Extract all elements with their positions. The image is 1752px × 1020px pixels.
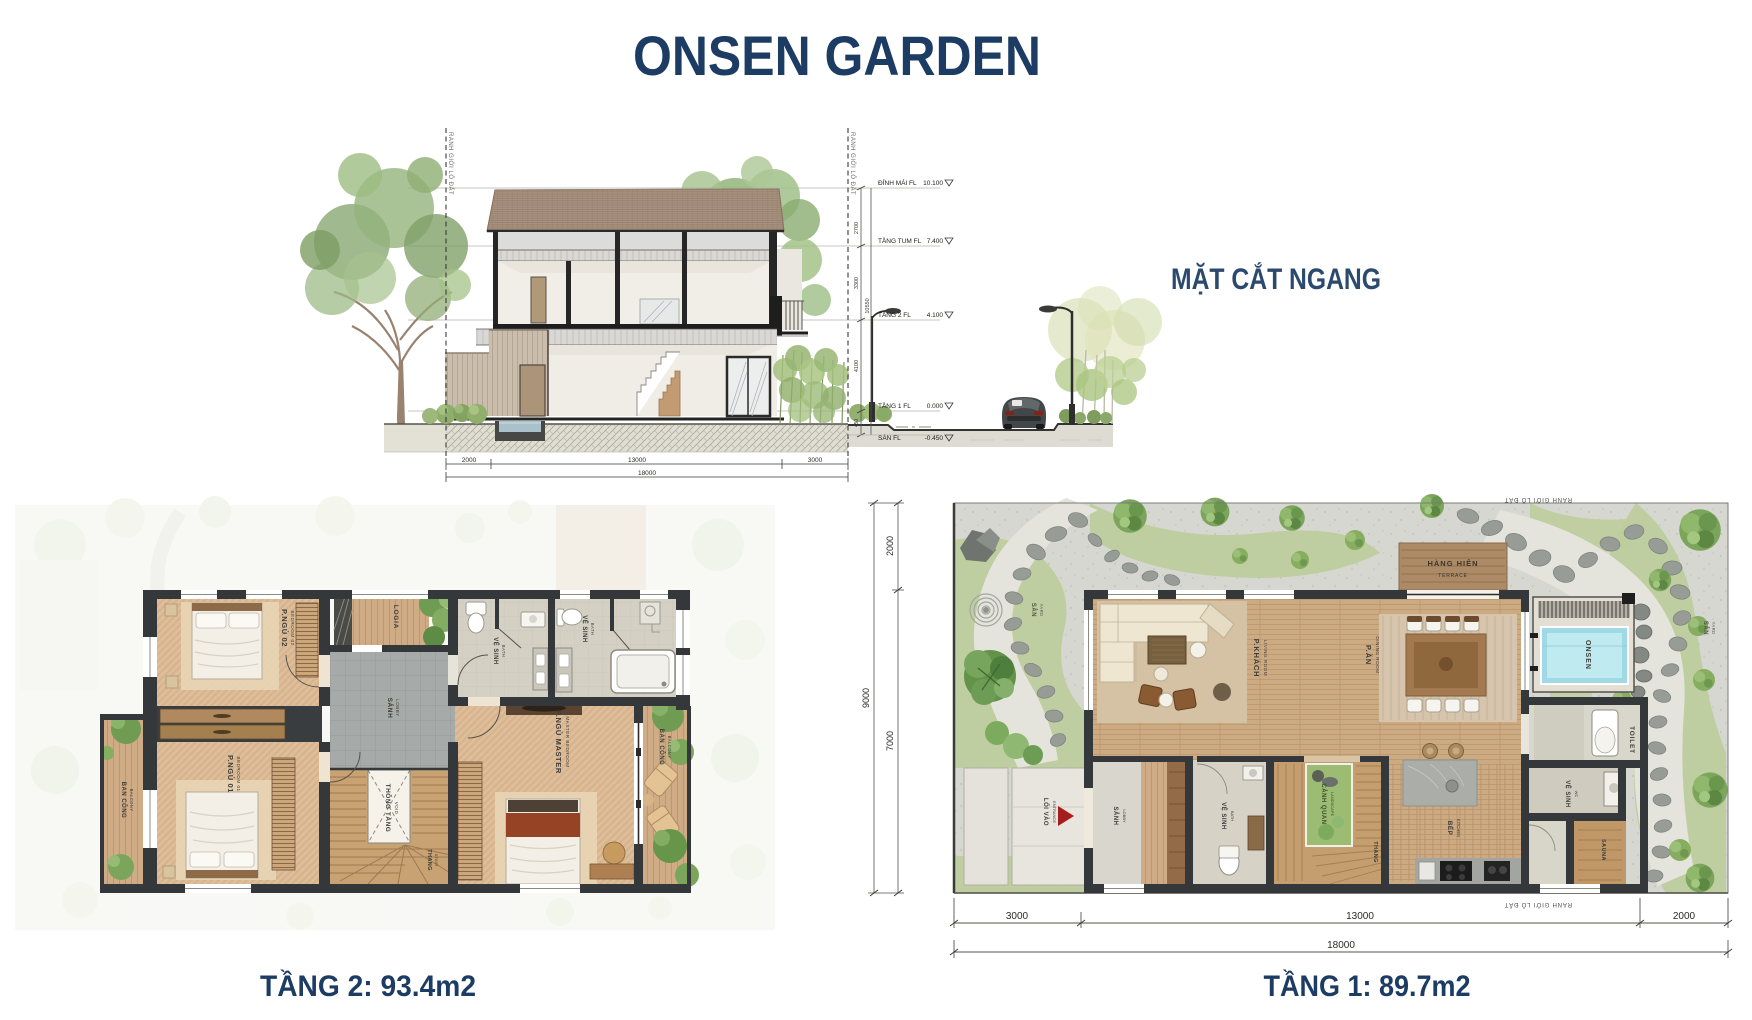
- svg-text:RANH GIỚI LÔ ĐẤT: RANH GIỚI LÔ ĐẤT: [1504, 901, 1572, 908]
- svg-text:VỆ SINH: VỆ SINH: [1564, 780, 1572, 808]
- svg-text:ONSEN: ONSEN: [1584, 640, 1591, 670]
- svg-text:450: 450: [854, 419, 860, 428]
- svg-text:HÀNG HIÊN: HÀNG HIÊN: [1427, 559, 1478, 568]
- svg-text:7000: 7000: [885, 731, 895, 751]
- svg-text:STAIR: STAIR: [434, 854, 439, 867]
- svg-text:13000: 13000: [1346, 911, 1374, 922]
- svg-text:MASTER BEDROOM: MASTER BEDROOM: [565, 716, 570, 767]
- svg-text:MẶT CẮT NGANG: MẶT CẮT NGANG: [1171, 262, 1381, 296]
- svg-text:SAUNA: SAUNA: [1600, 839, 1606, 861]
- svg-text:BATH: BATH: [1230, 811, 1235, 821]
- svg-text:2000: 2000: [462, 457, 477, 464]
- svg-text:VOID: VOID: [394, 802, 399, 815]
- svg-text:LANDSCAPE: LANDSCAPE: [1330, 792, 1335, 817]
- svg-text:LỐI VÀO: LỐI VÀO: [1042, 798, 1049, 826]
- svg-text:2000: 2000: [885, 536, 895, 556]
- svg-text:18000: 18000: [1327, 940, 1355, 951]
- svg-text:KITCHEN: KITCHEN: [1456, 819, 1461, 837]
- svg-text:THANG: THANG: [1372, 841, 1378, 863]
- svg-text:LIVING ROOM: LIVING ROOM: [1263, 640, 1268, 676]
- svg-text:TOILET: TOILET: [1628, 726, 1635, 754]
- svg-text:CẢNH QUAN: CẢNH QUAN: [1320, 783, 1327, 824]
- svg-text:0.000: 0.000: [927, 403, 944, 410]
- svg-text:LOGIA: LOGIA: [392, 605, 399, 630]
- svg-text:LOBBY: LOBBY: [395, 699, 400, 717]
- svg-text:P.NGỦ MASTER: P.NGỦ MASTER: [554, 710, 563, 774]
- svg-text:THANG: THANG: [426, 849, 432, 871]
- svg-text:3000: 3000: [1006, 911, 1029, 922]
- svg-text:YARD: YARD: [1039, 604, 1044, 617]
- svg-text:TẦNG 1: 89.7m2: TẦNG 1: 89.7m2: [1264, 969, 1471, 1003]
- svg-text:YARD: YARD: [1711, 622, 1716, 635]
- svg-text:BEDROOM 01: BEDROOM 01: [236, 756, 241, 791]
- svg-text:10.100: 10.100: [923, 180, 943, 187]
- svg-text:RANH GIỚI LÔ ĐẤT: RANH GIỚI LÔ ĐẤT: [447, 132, 454, 195]
- svg-text:DINING ROOM: DINING ROOM: [1375, 636, 1380, 673]
- svg-text:TERRACE: TERRACE: [1438, 573, 1468, 579]
- svg-text:BALCONY: BALCONY: [667, 736, 672, 759]
- svg-text:3300: 3300: [854, 277, 860, 289]
- svg-text:BATH: BATH: [590, 623, 595, 635]
- svg-text:VỆ SINH: VỆ SINH: [492, 637, 500, 665]
- svg-text:ĐỈNH MÁI FL: ĐỈNH MÁI FL: [878, 178, 917, 187]
- svg-text:BATH: BATH: [501, 645, 506, 657]
- svg-text:RANH GIỚI LÔ ĐẤT: RANH GIỚI LÔ ĐẤT: [849, 132, 856, 195]
- svg-text:SÂN: SÂN: [1030, 603, 1037, 617]
- svg-text:BALCONY: BALCONY: [129, 789, 134, 812]
- svg-text:ENTRANCE: ENTRANCE: [1052, 801, 1057, 823]
- svg-text:SẢNH: SẢNH: [386, 698, 395, 719]
- svg-text:WC: WC: [1574, 791, 1579, 798]
- svg-text:SÂN FL: SÂN FL: [878, 433, 901, 442]
- svg-text:BAN CÔNG: BAN CÔNG: [658, 729, 666, 766]
- svg-text:9000: 9000: [861, 688, 871, 708]
- svg-text:10550: 10550: [865, 298, 871, 313]
- svg-text:P.ĂN: P.ĂN: [1364, 645, 1373, 665]
- svg-text:4100: 4100: [854, 360, 860, 372]
- svg-text:BAN CÔNG: BAN CÔNG: [120, 782, 128, 819]
- svg-text:7.400: 7.400: [927, 238, 944, 245]
- svg-text:-0.450: -0.450: [925, 435, 944, 442]
- svg-text:SÂN: SÂN: [1702, 621, 1709, 635]
- svg-text:P.NGỦ 02: P.NGỦ 02: [280, 609, 289, 647]
- svg-text:BEDROOM 02: BEDROOM 02: [290, 610, 295, 645]
- svg-text:3000: 3000: [808, 457, 823, 464]
- svg-text:SẢNH: SẢNH: [1112, 806, 1119, 825]
- svg-text:ONSEN GARDEN: ONSEN GARDEN: [633, 24, 1041, 87]
- svg-text:VỆ SINH: VỆ SINH: [581, 615, 589, 643]
- svg-text:LOBBY: LOBBY: [1122, 809, 1127, 823]
- svg-text:RANH GIỚI LÔ ĐẤT: RANH GIỚI LÔ ĐẤT: [1504, 496, 1572, 503]
- svg-text:18000: 18000: [638, 470, 656, 477]
- svg-text:2000: 2000: [1673, 911, 1696, 922]
- svg-text:P.NGỦ 01: P.NGỦ 01: [226, 755, 235, 793]
- svg-text:4.100: 4.100: [927, 312, 944, 319]
- svg-text:2700: 2700: [854, 222, 860, 234]
- svg-text:TẦNG 2: 93.4m2: TẦNG 2: 93.4m2: [260, 969, 476, 1003]
- svg-text:13000: 13000: [628, 457, 646, 464]
- svg-text:P.KHÁCH: P.KHÁCH: [1252, 639, 1261, 678]
- svg-text:VỆ SINH: VỆ SINH: [1220, 802, 1228, 830]
